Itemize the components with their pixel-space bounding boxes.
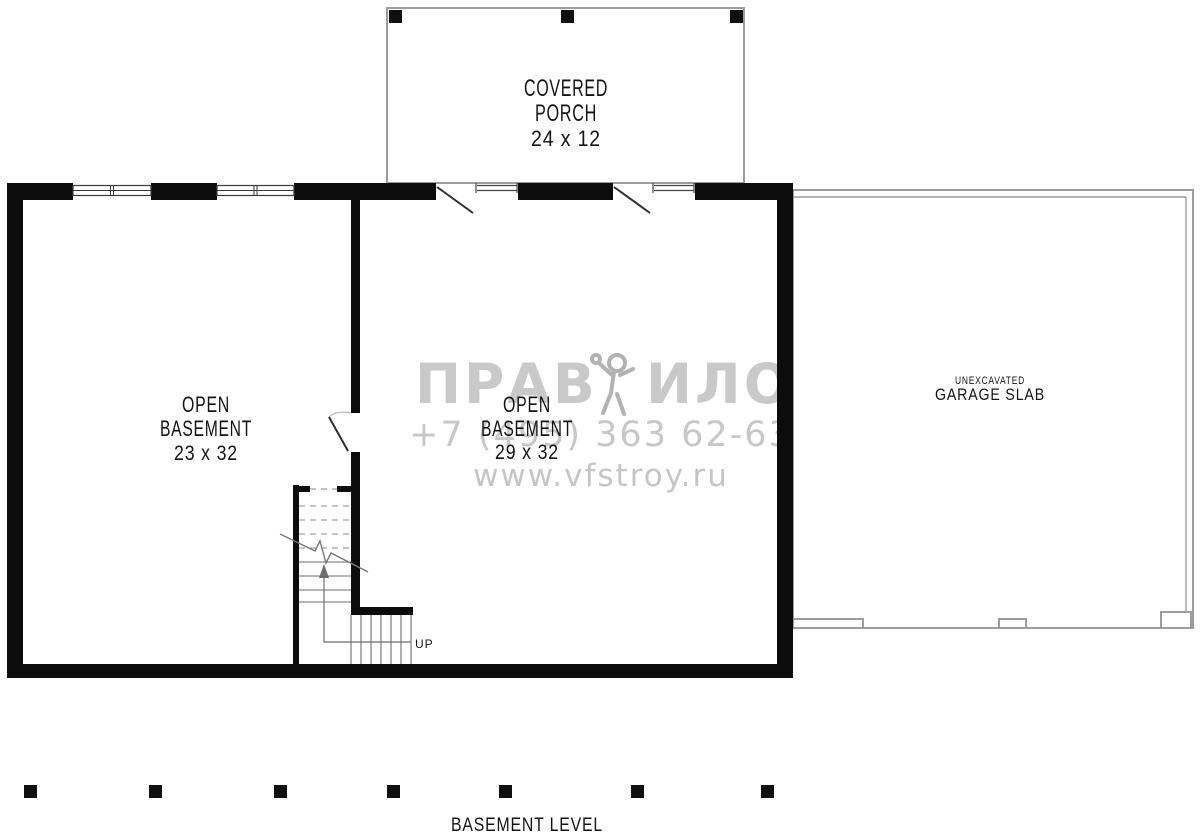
wall-right xyxy=(777,183,793,678)
wall-left xyxy=(7,183,23,678)
door-leaf xyxy=(614,187,650,213)
door-leaf xyxy=(437,187,473,213)
wall-top-segment xyxy=(518,183,613,200)
foundation-pier xyxy=(149,785,162,798)
basement-center-label-size: 29 x 32 xyxy=(495,441,559,464)
porch-post xyxy=(730,10,743,23)
stair-wall-stub xyxy=(337,486,351,492)
watermark-builder-figure-icon xyxy=(592,355,633,414)
foundation-pier xyxy=(387,785,400,798)
garage-door-tab xyxy=(1161,612,1191,628)
up-arrow-head xyxy=(319,564,329,578)
door-jamb xyxy=(653,183,694,193)
foundation-pier xyxy=(274,785,287,798)
door-jamb xyxy=(476,183,517,193)
watermark: ПРАВ ИЛО +7 (495) 363 62-63 www.vfstroy.… xyxy=(409,352,793,494)
figure-leg-left xyxy=(603,393,611,413)
basement-left-label-size: 23 x 32 xyxy=(174,442,238,465)
stair-wall-stub xyxy=(293,486,310,492)
foundation-pier xyxy=(631,785,644,798)
porch-label-size: 24 x 12 xyxy=(531,126,601,151)
wall-top-segment xyxy=(294,183,436,200)
partition-upper xyxy=(351,200,360,413)
figure-leg-right xyxy=(617,394,624,414)
watermark-phone: +7 (495) 363 62-63 xyxy=(409,415,793,455)
figure-head xyxy=(609,355,625,371)
porch-label-line2: PORCH xyxy=(535,100,597,127)
foundation-pier xyxy=(761,785,774,798)
stair-treads-lower-run xyxy=(351,615,411,664)
basement-center-label-line2: BASEMENT xyxy=(481,416,573,441)
wall-top-segment xyxy=(151,183,217,200)
window xyxy=(73,186,151,196)
watermark-brand-right: ИЛО xyxy=(646,352,793,416)
up-label: UP xyxy=(415,637,434,651)
partition-wall xyxy=(329,200,360,614)
foundation-pier xyxy=(499,785,512,798)
stair-wall-bottom xyxy=(351,607,413,615)
stair-wall-left xyxy=(293,485,299,664)
interior-door-leaf xyxy=(329,417,348,451)
floor-plan-drawing: ПРАВ ИЛО +7 (495) 363 62-63 www.vfstroy.… xyxy=(0,0,1200,836)
door-swing-arc xyxy=(329,412,351,417)
door xyxy=(614,183,694,213)
porch-post xyxy=(389,10,402,23)
porch-label-line1: COVERED xyxy=(524,75,608,102)
basement-center-label-line1: OPEN xyxy=(503,392,551,417)
basement-left-label-line1: OPEN xyxy=(182,392,230,417)
door-panel xyxy=(654,186,694,191)
garage-outline xyxy=(793,190,1193,628)
garage-door-tab xyxy=(793,619,863,628)
wall-bottom xyxy=(7,664,793,678)
garage-door-tab xyxy=(999,619,1026,628)
porch-post xyxy=(561,10,574,23)
floor-plan-page: ПРАВ ИЛО +7 (495) 363 62-63 www.vfstroy.… xyxy=(0,0,1200,836)
garage-label-line2: GARAGE SLAB xyxy=(935,385,1045,404)
door xyxy=(437,183,517,213)
stair-treads-hidden xyxy=(299,506,351,548)
partition-lower xyxy=(351,452,360,614)
window xyxy=(217,186,294,196)
sheet-title: BASEMENT LEVEL xyxy=(451,815,603,836)
foundation-piers xyxy=(24,785,774,798)
foundation-pier xyxy=(24,785,37,798)
door-panel xyxy=(477,186,517,191)
garage-slab xyxy=(793,190,1193,628)
basement-left-label-line2: BASEMENT xyxy=(160,416,252,441)
